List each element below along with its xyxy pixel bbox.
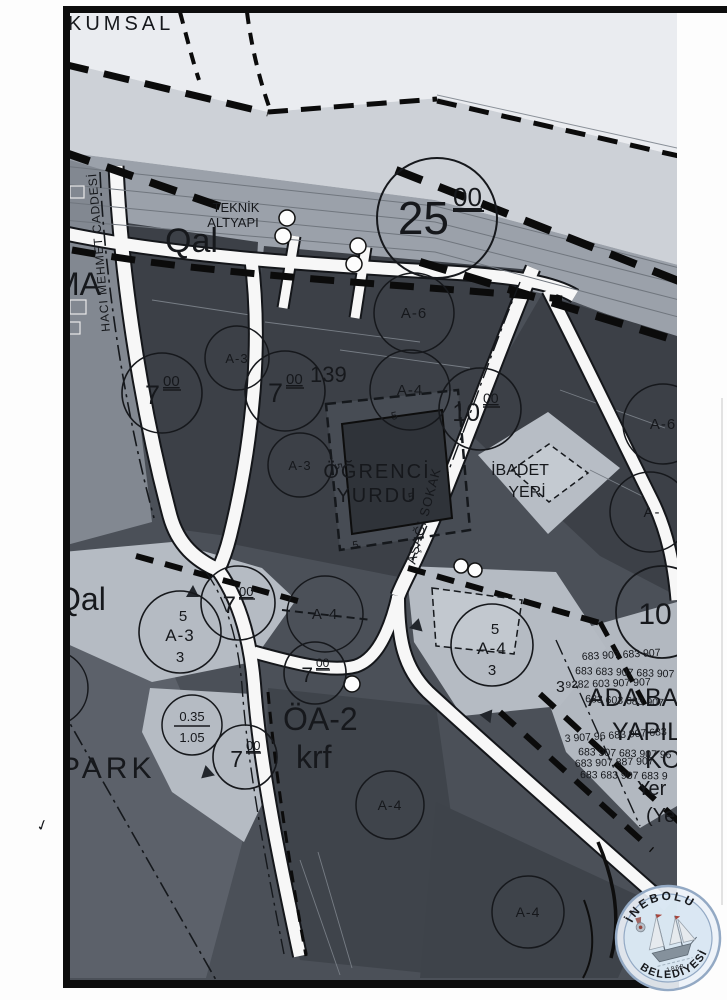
stack-mid: A-4: [477, 639, 506, 658]
far-ratio-top: 0.35: [179, 709, 204, 724]
stack-top: 5: [491, 621, 499, 638]
road-width-sup: 00: [239, 584, 253, 599]
parcel-code: 2: [51, 687, 61, 704]
stack-bot: 3: [488, 662, 496, 679]
label-ko: KO: [645, 746, 681, 774]
label-kumsal: KUMSAL: [68, 13, 174, 35]
parcel-code: A-3: [225, 351, 248, 366]
label-yapil: YAPIL: [612, 718, 681, 746]
label-qal-top: Qal: [165, 222, 218, 260]
label-yurdu: YURDU: [336, 485, 417, 507]
small-number: 3⁹²: [556, 679, 578, 696]
road-width-value: 10: [452, 399, 480, 427]
road-width-value: 25: [398, 192, 449, 244]
zoning-map-svg: 683 907 683 907 683 683 907 683 907 282 …: [0, 0, 727, 1000]
label-yeri: YERİ: [508, 482, 545, 501]
road-width-value: 7: [145, 380, 160, 410]
scanned-zoning-plan-page: 683 907 683 907 683 683 907 683 907 282 …: [0, 0, 727, 1000]
parcel-code: A-6: [401, 305, 427, 322]
road-width-sup: 00: [453, 182, 482, 212]
parcel-code: A-: [644, 504, 661, 521]
road-width-sup: 00: [246, 738, 260, 753]
road-width-sup: 00: [483, 390, 499, 406]
label-krf: krf: [296, 739, 332, 775]
label-ada-ba: ADA BA: [588, 684, 679, 712]
parcel-code: A-6: [650, 416, 676, 433]
road-width-sup: 00: [286, 371, 303, 388]
stack-mid: A-3: [165, 626, 194, 645]
check-mark: ✓: [34, 816, 51, 836]
road-width-value: 7: [301, 664, 313, 687]
parcel-code: A-4: [312, 606, 338, 623]
road-width-value: 7: [268, 378, 283, 408]
road-width-sup: 00: [316, 656, 330, 670]
road-width-value: 7: [223, 592, 236, 619]
road-width-value: 7: [230, 746, 243, 772]
label-ye-paren: (Ye: [646, 805, 675, 827]
parcel-code: A-4: [378, 797, 403, 813]
parcel-code: A-4: [516, 904, 541, 920]
road-width-sup: 00: [163, 373, 180, 390]
road-width-value: 10: [638, 598, 671, 631]
stack-top: 5: [179, 608, 187, 625]
label-teknik-altyapi-1: TEKNİK: [213, 200, 260, 215]
stack-bot: 3: [176, 649, 184, 666]
parcel-code: A-3: [288, 458, 311, 473]
parcel-code: A-4: [397, 382, 423, 399]
label-ibadet: İBADET: [491, 460, 549, 479]
far-ratio-bottom: 1.05: [179, 730, 204, 745]
label-yer: Yer: [637, 778, 667, 800]
label-park: PARK: [60, 752, 155, 785]
label-oa2: ÖA-2: [283, 701, 358, 737]
